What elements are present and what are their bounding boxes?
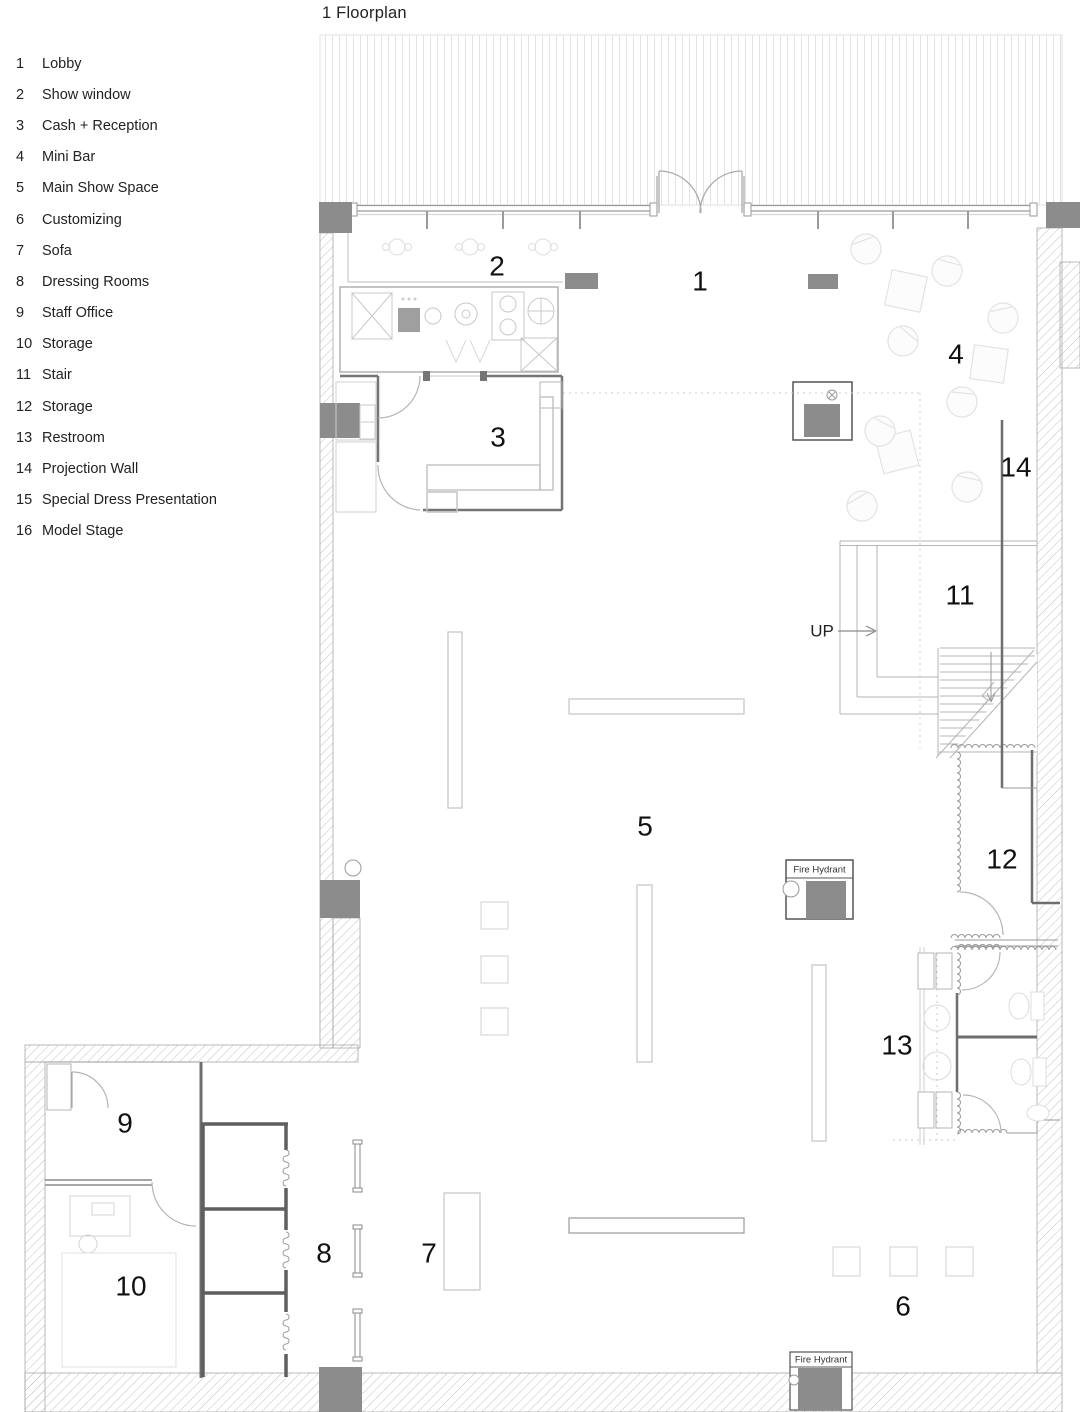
display-fixtures bbox=[448, 632, 826, 1233]
mirror-panel bbox=[353, 1140, 362, 1361]
room-label-7: 7 bbox=[421, 1238, 437, 1269]
fire-hydrant-box: Fire Hydrant bbox=[789, 1352, 852, 1410]
sofa bbox=[444, 1193, 480, 1290]
room-labels: 1 2 3 4 5 6 7 8 9 10 11 12 13 14 UP bbox=[115, 251, 1031, 1322]
room-label-13: 13 bbox=[881, 1030, 912, 1061]
room-label-5: 5 bbox=[637, 811, 653, 842]
sidewalk-hatch bbox=[320, 35, 1062, 205]
column-box bbox=[793, 382, 852, 440]
stair bbox=[838, 541, 1037, 758]
door-arc bbox=[152, 1182, 196, 1226]
room-label-10: 10 bbox=[115, 1271, 146, 1302]
kitchen bbox=[340, 287, 558, 372]
room-label-14: 14 bbox=[1000, 452, 1031, 483]
cash-reception bbox=[336, 371, 562, 512]
room-label-1: 1 bbox=[692, 266, 708, 297]
room-label-3: 3 bbox=[490, 422, 506, 453]
room-label-12: 12 bbox=[986, 844, 1017, 875]
room-label-8: 8 bbox=[316, 1238, 332, 1269]
dressing-rooms bbox=[201, 1124, 362, 1377]
reception-counter bbox=[427, 397, 553, 512]
fire-hydrant-label: Fire Hydrant bbox=[795, 1355, 848, 1366]
show-window bbox=[348, 233, 563, 282]
spotlight-icon bbox=[383, 239, 558, 255]
storefront bbox=[350, 203, 1037, 229]
up-label: UP bbox=[810, 622, 834, 641]
room-label-9: 9 bbox=[117, 1108, 133, 1139]
door-arc bbox=[378, 465, 420, 510]
room-label-6: 6 bbox=[895, 1291, 911, 1322]
door-arc bbox=[960, 892, 1003, 935]
door-arc bbox=[72, 1072, 108, 1108]
floorplan-page: 1 Floorplan 1Lobby 2Show window 3Cash + … bbox=[0, 0, 1080, 1412]
room-label-2: 2 bbox=[489, 251, 505, 282]
mini-bar bbox=[842, 230, 1021, 527]
fire-hydrant-box: Fire Hydrant bbox=[783, 860, 853, 919]
fire-hydrant-label: Fire Hydrant bbox=[793, 865, 846, 876]
curtain bbox=[283, 1150, 289, 1350]
door-arc bbox=[963, 1095, 1001, 1133]
door-arc bbox=[962, 952, 1000, 990]
customizing bbox=[833, 1247, 973, 1276]
room-label-11: 11 bbox=[945, 580, 974, 611]
floorplan-svg: Fire Hydrant Fire Hydrant 1 2 3 4 5 6 7 … bbox=[0, 0, 1080, 1412]
dotted-guides bbox=[563, 393, 958, 1140]
door-arc bbox=[378, 376, 420, 418]
room-label-4: 4 bbox=[948, 339, 964, 370]
